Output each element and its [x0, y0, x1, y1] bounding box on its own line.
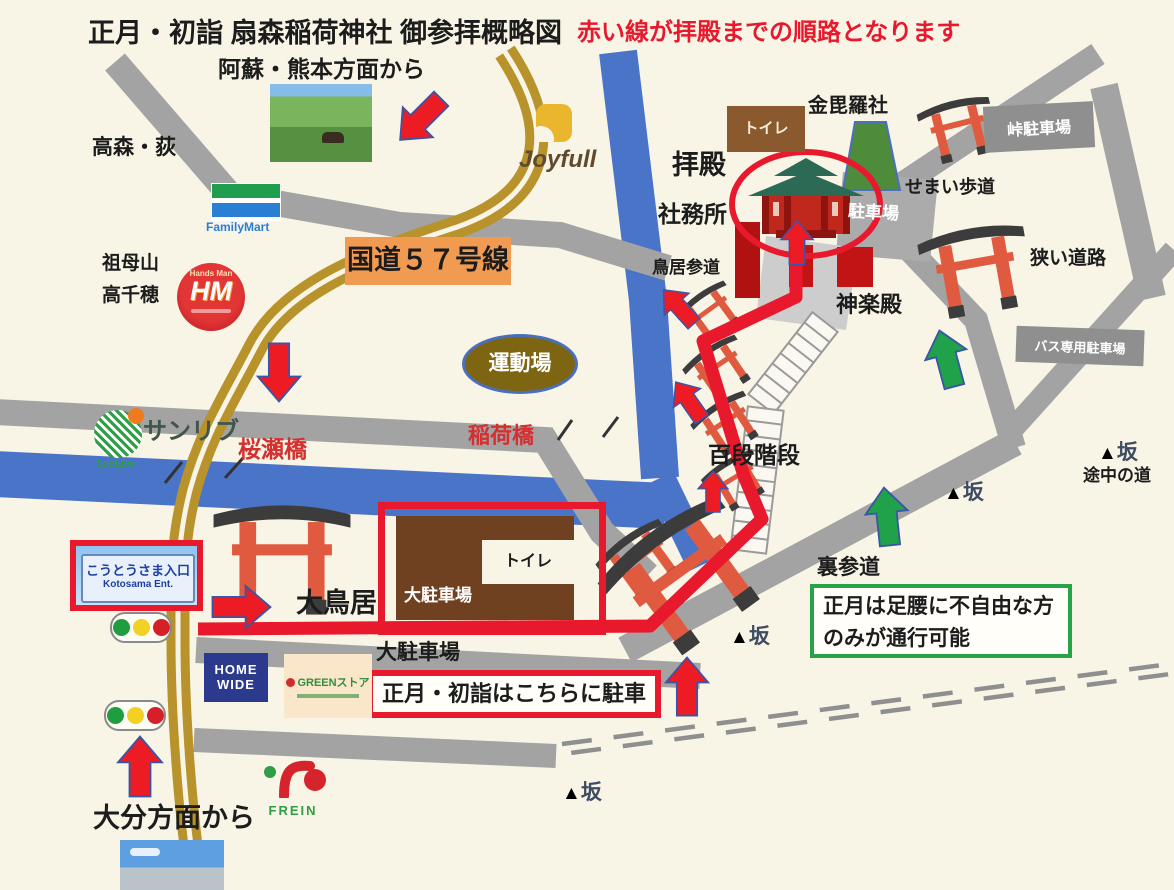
homewide-logo: HOME WIDE: [204, 653, 268, 702]
familymart-green-stripe: [212, 184, 280, 198]
urasando-note-line1: 正月は足腰に不自由な方: [823, 591, 1059, 623]
traffic-light-south: [104, 700, 166, 731]
kaguraden-label: 神楽殿: [836, 292, 902, 317]
takachiho-label: 高千穂: [102, 285, 159, 307]
haiden-parking-label: 駐車場: [848, 202, 900, 224]
horse-silhouette: [322, 132, 344, 143]
green-store-label: GREENストア: [297, 674, 369, 690]
familymart-blue-stripe: [212, 203, 280, 217]
urasando-note-box: 正月は足腰に不自由な方 のみが通行可能: [810, 584, 1072, 658]
joyfull-icon: [536, 104, 572, 142]
sunlive-logo-mark: [94, 410, 142, 458]
green-arrow-kagura: [919, 325, 975, 392]
from-oita-label: 大分方面から: [93, 803, 255, 834]
slope-triangle-icon: ▲: [944, 483, 963, 504]
arrow-from-oita: [118, 737, 162, 797]
undojo-ellipse: 運動場: [462, 334, 578, 394]
homewide-line1: HOME: [215, 663, 258, 678]
slope-triangle-icon: ▲: [562, 783, 581, 804]
otorii-label: 大鳥居: [296, 588, 377, 619]
kotosama-sign: こうとうさま入口 Kotosama Ent.: [70, 540, 203, 611]
takamori-ogi-label: 高森・荻: [92, 136, 176, 160]
green-light: [107, 707, 124, 724]
aso-grassland-photo: [270, 84, 372, 162]
arrow-from-aso: [385, 84, 456, 155]
main-parking-toilet-notch: トイレ: [482, 540, 574, 584]
kotosama-sign-en: Kotosama Ent.: [83, 579, 193, 590]
familymart-label: FamilyMart: [206, 221, 269, 235]
red-light: [153, 619, 170, 636]
haiden-label: 拝殿: [672, 150, 726, 181]
frein-logo: FREIN: [258, 752, 328, 816]
stairs-upper: [748, 312, 837, 414]
slope-marker-4: ▲坂: [562, 776, 602, 806]
konpirasha-label: 金毘羅社: [808, 95, 888, 118]
sunlive-orange-dot: [128, 408, 144, 424]
inari-bridge-label: 稲荷橋: [468, 423, 534, 448]
torii-sando-label: 鳥居参道: [652, 258, 720, 278]
slope-triangle-icon: ▲: [1098, 443, 1117, 464]
from-aso-label: 阿蘇・熊本方面から: [218, 56, 425, 82]
sunlive-label: サンリブ: [143, 418, 239, 446]
semai-hodou-label: せまい歩道: [905, 177, 995, 198]
yellow-light: [133, 619, 150, 636]
familymart-logo: [211, 183, 281, 221]
main-parking-toilet-label: トイレ: [504, 553, 552, 571]
bus-parking-box: バス専用駐車場: [1015, 326, 1144, 366]
sunlive-en-label: SunLive: [96, 459, 135, 471]
urasando-label: 裏参道: [817, 556, 880, 580]
kotosama-sign-panel: こうとうさま入口 Kotosama Ent.: [81, 554, 195, 603]
homewide-line2: WIDE: [217, 678, 255, 693]
kotosama-sign-jp: こうとうさま入口: [83, 560, 193, 579]
haiden-toilet-box: トイレ: [727, 106, 805, 152]
legend-note: 赤い線が拝殿までの順路となります: [577, 19, 960, 47]
oita-city-photo: [120, 840, 224, 890]
slope-marker-2: ▲坂: [1098, 436, 1138, 466]
main-parking-name: 大駐車場: [404, 586, 472, 606]
joyfull-label: Joyfull: [519, 146, 596, 174]
shamusho-label: 社務所: [658, 201, 727, 227]
slope-marker-3: ▲坂: [730, 620, 770, 650]
midway-road-label: 途中の道: [1083, 466, 1151, 486]
south-parking-label: 大駐車場: [376, 641, 460, 665]
urasando-note-line2: のみが通行可能: [823, 623, 1059, 655]
slope-triangle-icon: ▲: [730, 627, 749, 648]
frein-mark: [258, 752, 328, 798]
green-store-logo: GREENストア: [284, 654, 372, 718]
sobosan-label: 祖母山: [102, 253, 159, 275]
new-year-parking-note: 正月・初詣はこちらに駐車: [382, 681, 646, 706]
slope-marker-1: ▲坂: [944, 476, 984, 506]
semai-doro-label: 狭い道路: [1030, 248, 1106, 270]
yellow-light: [127, 707, 144, 724]
green-light: [113, 619, 130, 636]
sakurase-bridge-label: 桜瀬橋: [238, 436, 307, 462]
new-year-parking-box: 正月・初詣はこちらに駐車: [367, 670, 661, 718]
frein-label: FREIN: [258, 803, 328, 818]
hyakudan-kaidan-label: 百段階段: [708, 442, 800, 468]
shrine-access-map: 正月・初詣 扇森稲荷神社 御参拝概略図 赤い線が拝殿までの順路となります 阿蘇・…: [0, 0, 1174, 890]
red-light: [147, 707, 164, 724]
green-store-dot: [286, 678, 295, 687]
traffic-light-kotosama: [110, 612, 172, 643]
route57-box: 国道５７号線: [345, 237, 511, 285]
touge-parking-box: 峠駐車場: [983, 101, 1095, 153]
handsman-initials: HM: [177, 278, 245, 305]
handsman-logo: Hands Man HM: [177, 263, 245, 331]
page-title: 正月・初詣 扇森稲荷神社 御参拝概略図: [88, 18, 562, 49]
